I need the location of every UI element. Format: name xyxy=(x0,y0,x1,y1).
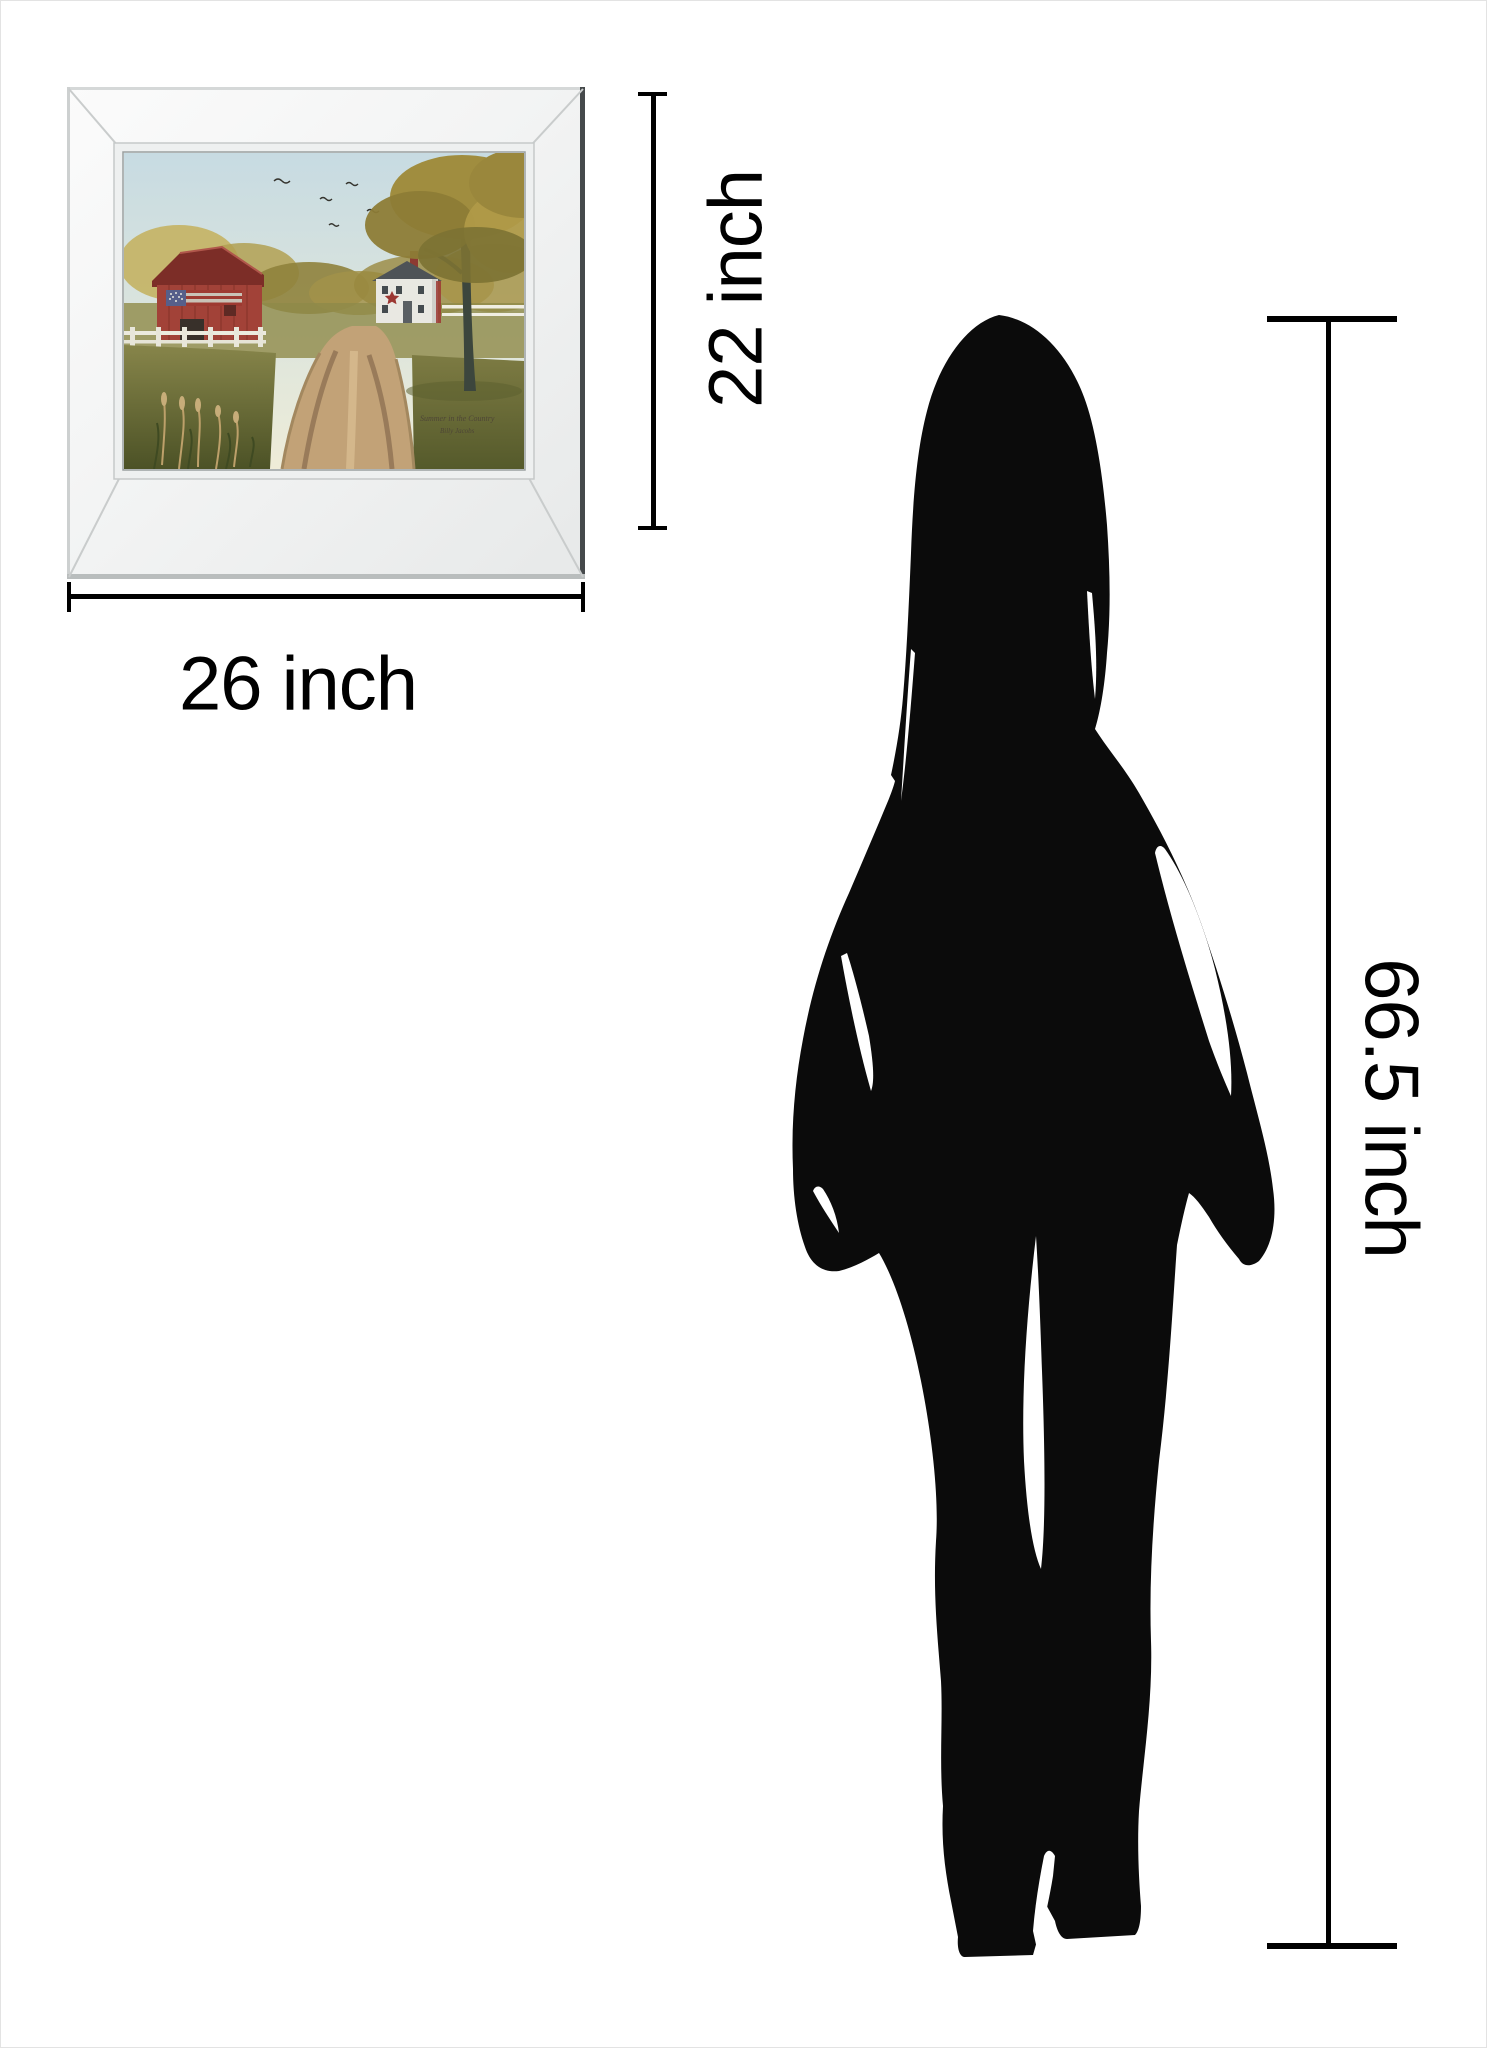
woman-silhouette xyxy=(781,301,1291,1961)
silhouette-body xyxy=(792,315,1274,1957)
frame-width-label: 26 inch xyxy=(179,641,417,728)
frame-edge-shadow xyxy=(580,87,585,579)
frame-width-line xyxy=(69,594,583,599)
frame-width-right-tick xyxy=(581,582,585,612)
painting-summer-in-the-country: Summer in the Country Billy Jacobs xyxy=(119,148,579,469)
barn-flag xyxy=(166,290,242,306)
frame-height-line xyxy=(651,94,656,528)
framed-artwork: Summer in the Country Billy Jacobs xyxy=(67,87,585,579)
frame-height-top-tick xyxy=(638,92,667,96)
person-height-bottom-cap xyxy=(1267,1943,1397,1949)
frame-height-bottom-tick xyxy=(638,526,667,530)
frame-width-left-tick xyxy=(67,582,71,612)
size-chart-diagram: Summer in the Country Billy Jacobs 22 in… xyxy=(0,0,1487,2048)
signature-artist: Billy Jacobs xyxy=(440,427,475,435)
person-height-line xyxy=(1326,316,1331,1949)
person-height-top-cap xyxy=(1267,316,1397,322)
frame-height-label: 22 inch xyxy=(693,170,780,408)
signature-title: Summer in the Country xyxy=(420,414,495,423)
person-height-label: 66.5 inch xyxy=(1348,958,1435,1257)
